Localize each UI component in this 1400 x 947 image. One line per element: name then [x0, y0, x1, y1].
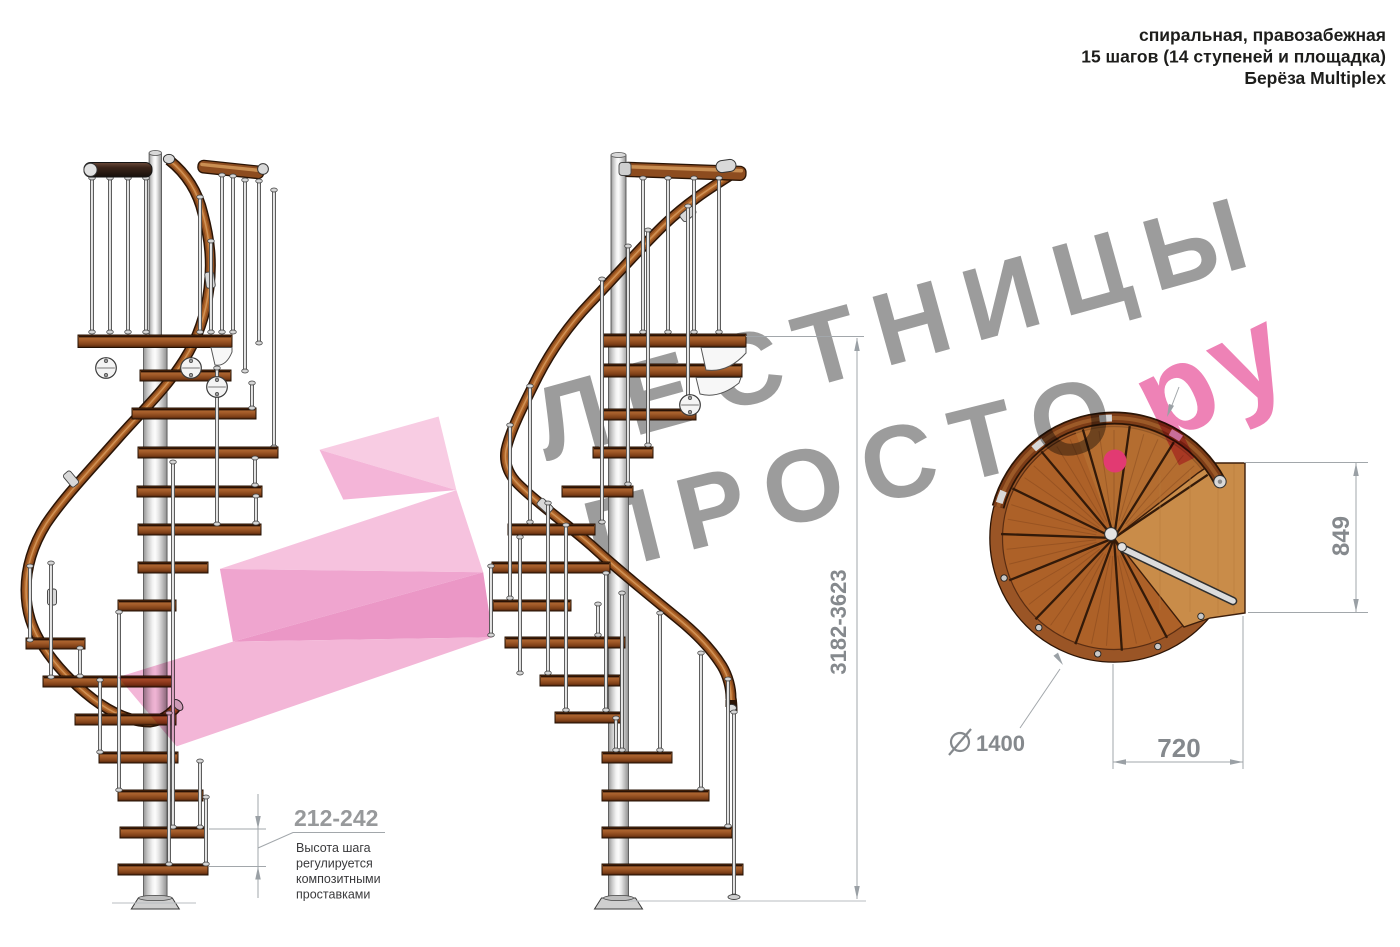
svg-text:15 шагов (14 ступеней и площад: 15 шагов (14 ступеней и площадка) [1081, 47, 1386, 67]
svg-text:Берёза Multiplex: Берёза Multiplex [1244, 68, 1386, 88]
svg-text:849: 849 [1328, 516, 1355, 556]
svg-text:1400: 1400 [976, 731, 1025, 756]
svg-text:212-242: 212-242 [294, 805, 378, 831]
svg-text:спиральная, правозабежная: спиральная, правозабежная [1139, 25, 1386, 45]
svg-text:композитными: композитными [296, 872, 381, 886]
svg-text:проставками: проставками [296, 888, 370, 902]
svg-text:Высота шага: Высота шага [296, 841, 371, 855]
svg-text:3182-3623: 3182-3623 [826, 569, 851, 674]
svg-text:регулируется: регулируется [296, 857, 373, 871]
svg-text:720: 720 [1157, 733, 1200, 763]
